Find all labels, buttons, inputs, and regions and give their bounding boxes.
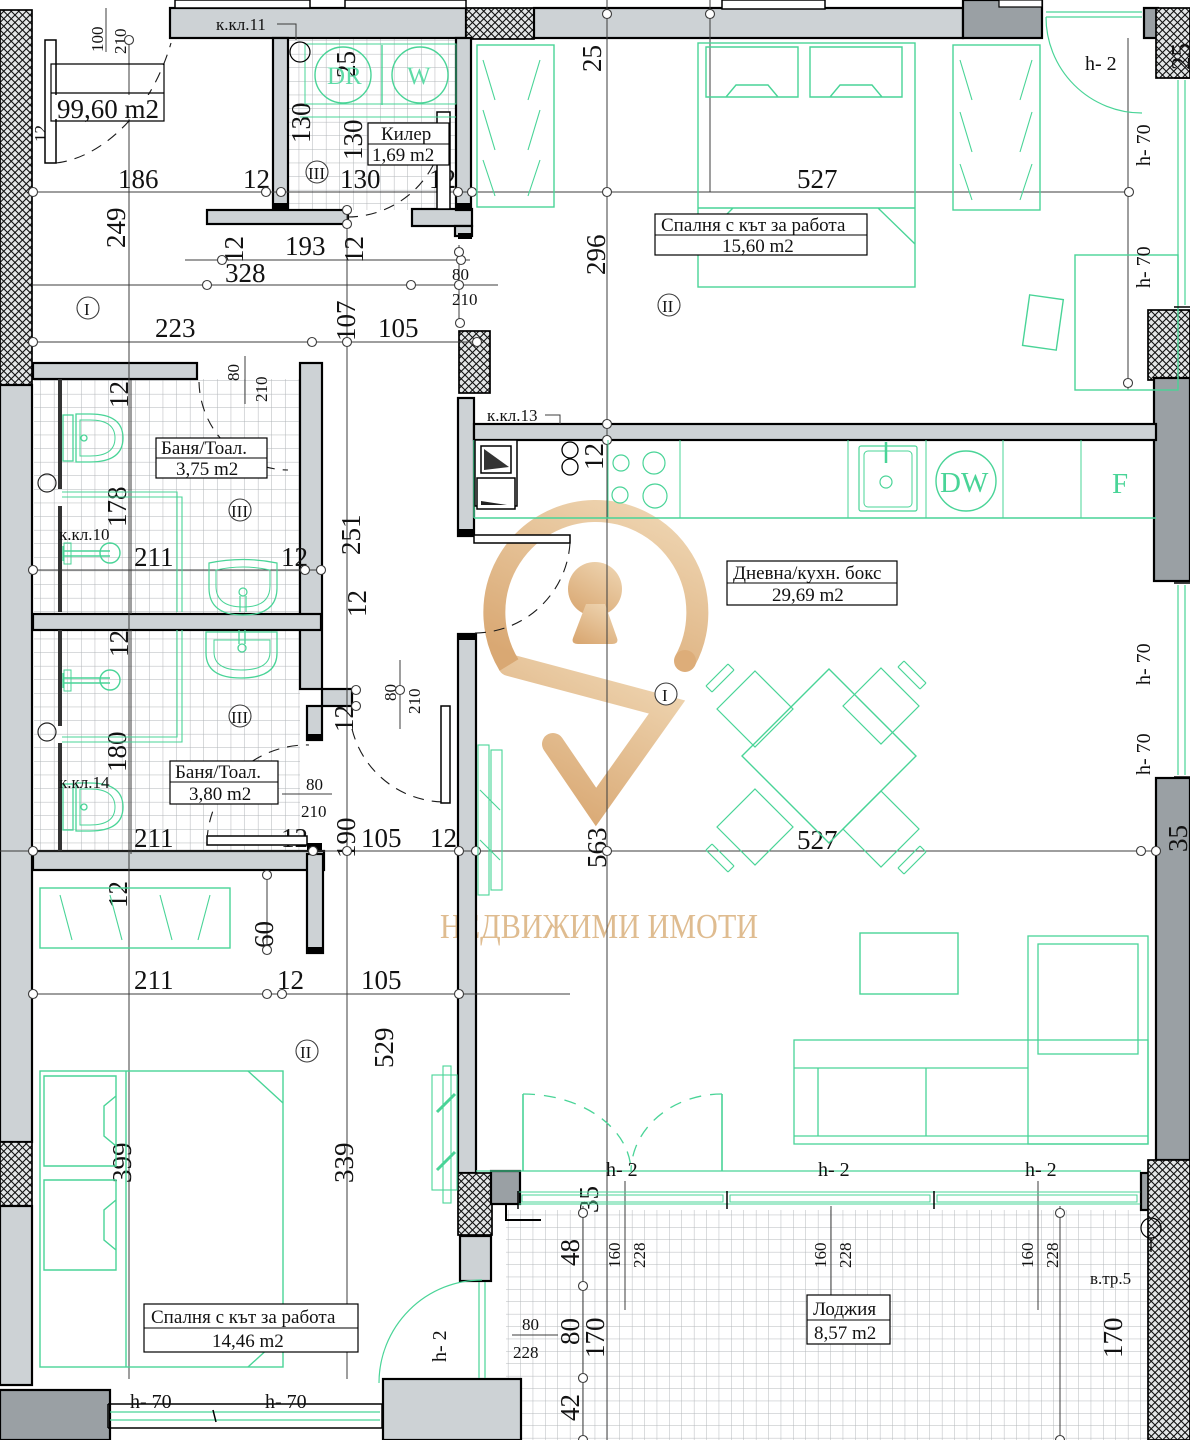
svg-text:Спалня с кът за работа: Спалня с кът за работа: [151, 1307, 336, 1328]
svg-text:529: 529: [369, 1028, 399, 1069]
svg-text:8,57 m2: 8,57 m2: [814, 1323, 876, 1344]
svg-text:80: 80: [306, 775, 323, 794]
svg-text:339: 339: [329, 1143, 359, 1184]
svg-text:35: 35: [574, 1186, 604, 1213]
svg-text:130: 130: [340, 164, 381, 194]
svg-text:DR: DR: [327, 63, 362, 90]
svg-text:130: 130: [286, 103, 316, 144]
svg-text:h- 70: h- 70: [1133, 643, 1155, 685]
svg-text:99,60 m2: 99,60 m2: [57, 94, 159, 124]
svg-text:42: 42: [555, 1394, 585, 1421]
svg-text:DW: DW: [940, 467, 989, 499]
svg-text:249: 249: [101, 208, 131, 249]
svg-text:III: III: [231, 502, 248, 521]
svg-text:Лоджия: Лоджия: [813, 1299, 876, 1320]
svg-text:h- 2: h- 2: [606, 1159, 638, 1181]
svg-text:210: 210: [405, 689, 424, 715]
svg-text:48: 48: [555, 1239, 585, 1266]
svg-text:210: 210: [301, 802, 327, 821]
svg-text:Спалня с кът за работа: Спалня с кът за работа: [661, 215, 846, 236]
svg-text:210: 210: [452, 290, 478, 309]
svg-text:105: 105: [361, 965, 402, 995]
svg-text:211: 211: [134, 823, 174, 853]
svg-text:251: 251: [336, 515, 366, 556]
svg-text:186: 186: [118, 164, 159, 194]
svg-text:Баня/Тоал.: Баня/Тоал.: [175, 762, 261, 783]
svg-text:3,75 m2: 3,75 m2: [176, 459, 238, 480]
svg-text:к.кл.13: к.кл.13: [487, 406, 538, 425]
svg-text:193: 193: [285, 231, 326, 261]
svg-text:h- 2: h- 2: [818, 1159, 850, 1181]
svg-text:170: 170: [580, 1318, 610, 1359]
svg-text:15,60 m2: 15,60 m2: [722, 236, 794, 257]
svg-text:100: 100: [88, 27, 107, 53]
svg-text:223: 223: [155, 313, 196, 343]
svg-text:h- 70: h- 70: [1133, 246, 1155, 288]
svg-text:Килер: Килер: [381, 124, 431, 145]
svg-text:178: 178: [102, 487, 132, 528]
svg-text:160: 160: [1018, 1243, 1037, 1269]
svg-text:III: III: [308, 164, 325, 183]
svg-text:II: II: [300, 1043, 312, 1062]
svg-text:25: 25: [577, 45, 607, 72]
svg-text:12: 12: [104, 381, 134, 408]
svg-text:II: II: [662, 297, 674, 316]
svg-text:211: 211: [134, 965, 174, 995]
svg-text:НЕДВИЖИМИ ИМОТИ: НЕДВИЖИМИ ИМОТИ: [440, 907, 758, 946]
svg-text:в.тр.5: в.тр.5: [1090, 1269, 1131, 1288]
svg-text:228: 228: [630, 1243, 649, 1269]
svg-text:F: F: [1112, 468, 1128, 500]
svg-text:211: 211: [134, 542, 174, 572]
svg-text:328: 328: [225, 258, 266, 288]
svg-text:h- 2: h- 2: [1085, 53, 1117, 75]
svg-text:I: I: [84, 300, 90, 319]
svg-text:h- 70: h- 70: [1133, 733, 1155, 775]
svg-text:Баня/Тоал.: Баня/Тоал.: [161, 438, 247, 459]
svg-text:228: 228: [1043, 1243, 1062, 1269]
svg-text:296: 296: [581, 235, 611, 276]
svg-text:h- 70: h- 70: [130, 1391, 172, 1413]
svg-text:12: 12: [103, 881, 133, 908]
svg-text:12: 12: [430, 823, 457, 853]
svg-text:h- 70: h- 70: [1133, 124, 1155, 166]
svg-text:399: 399: [107, 1143, 137, 1184]
svg-text:h- 2: h- 2: [1025, 1159, 1057, 1181]
svg-text:105: 105: [361, 823, 402, 853]
svg-text:14,46 m2: 14,46 m2: [212, 1331, 284, 1352]
svg-text:130: 130: [338, 120, 368, 161]
svg-text:29,69 m2: 29,69 m2: [772, 585, 844, 606]
svg-text:25: 25: [1166, 43, 1190, 70]
svg-text:h- 2: h- 2: [429, 1330, 451, 1362]
svg-text:228: 228: [513, 1343, 539, 1362]
svg-text:12: 12: [579, 443, 609, 470]
svg-text:80: 80: [224, 364, 243, 381]
svg-text:к.кл.14: к.кл.14: [59, 773, 110, 792]
svg-text:1,69 m2: 1,69 m2: [372, 145, 434, 166]
svg-text:527: 527: [797, 164, 838, 194]
svg-text:III: III: [231, 708, 248, 727]
svg-text:170: 170: [1098, 1318, 1128, 1359]
svg-text:35: 35: [1163, 825, 1190, 852]
svg-text:12: 12: [342, 590, 372, 617]
svg-text:h- 70: h- 70: [265, 1391, 307, 1413]
svg-text:12: 12: [104, 630, 134, 657]
svg-text:160: 160: [811, 1243, 830, 1269]
svg-text:Дневна/кухн. бокс: Дневна/кухн. бокс: [733, 563, 881, 584]
svg-text:I: I: [662, 686, 668, 705]
svg-text:107: 107: [331, 301, 361, 342]
svg-text:228: 228: [836, 1243, 855, 1269]
svg-text:80: 80: [522, 1315, 539, 1334]
svg-text:180: 180: [102, 732, 132, 773]
svg-text:60: 60: [249, 921, 279, 948]
svg-text:210: 210: [252, 377, 271, 403]
svg-text:160: 160: [605, 1243, 624, 1269]
svg-text:105: 105: [378, 313, 419, 343]
svg-text:3,80 m2: 3,80 m2: [189, 784, 251, 805]
svg-text:12: 12: [339, 236, 369, 263]
svg-text:W: W: [407, 63, 431, 90]
svg-text:к.кл.10: к.кл.10: [59, 525, 110, 544]
svg-text:к.кл.11: к.кл.11: [216, 15, 266, 34]
